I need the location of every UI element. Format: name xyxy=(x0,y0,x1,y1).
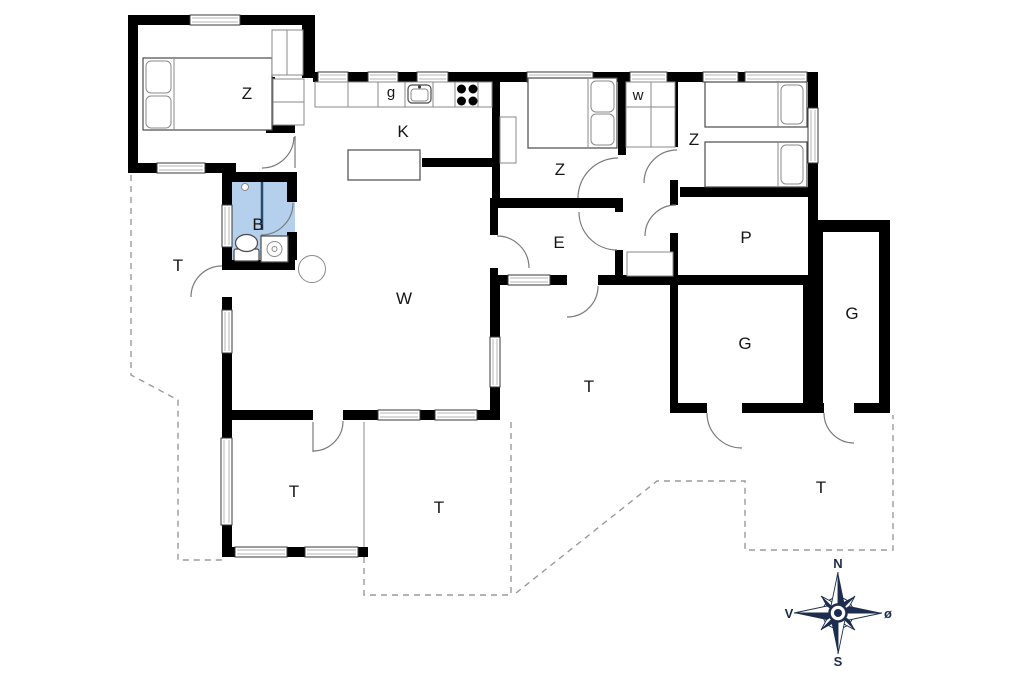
window xyxy=(157,163,205,173)
window xyxy=(235,547,287,557)
window xyxy=(305,547,358,557)
label-bedroom1: Z xyxy=(242,84,252,103)
floorplan-canvas: Z K g Z w Z B E P W G G T T T T T xyxy=(0,0,1024,682)
wardrobe-bedroom2 xyxy=(500,117,516,163)
kitchen-island xyxy=(348,150,420,180)
door-bedroom1-arc xyxy=(262,137,294,168)
label-bathroom: B xyxy=(252,215,263,234)
door-conservatory-arc xyxy=(313,421,343,451)
window xyxy=(808,108,818,163)
door-garage2-arc xyxy=(824,413,854,443)
compass-rose-icon: N S V ø xyxy=(785,556,892,669)
window xyxy=(318,72,348,82)
window xyxy=(378,410,420,420)
washing-machine-icon xyxy=(261,236,288,262)
compass-east-label: ø xyxy=(884,606,892,621)
door-entry-south-arc xyxy=(567,286,598,317)
label-terrace-mid: T xyxy=(434,498,444,517)
door-west-terrace-arc xyxy=(191,266,222,297)
label-pantry: P xyxy=(740,228,751,247)
door-entry-hall-arc xyxy=(579,212,617,250)
window xyxy=(745,72,807,82)
window xyxy=(490,337,500,387)
door-entry-west-arc xyxy=(497,236,529,268)
label-utility: w xyxy=(632,87,644,104)
label-bedroom3: Z xyxy=(689,130,699,149)
toilet-icon xyxy=(234,235,259,262)
compass-north-label: N xyxy=(833,556,842,571)
compass-south-label: S xyxy=(834,654,843,669)
kitchen-sink-icon xyxy=(408,85,431,103)
label-garage1: G xyxy=(738,334,751,353)
window xyxy=(222,205,232,247)
label-entry: E xyxy=(553,233,564,252)
bed-single-2 xyxy=(705,142,807,187)
label-kitchen: K xyxy=(397,122,409,141)
label-fridge: g xyxy=(387,84,395,101)
door-bedroom3-arc xyxy=(644,150,677,183)
hall-closet xyxy=(627,252,673,276)
window xyxy=(417,72,448,82)
bed-double-1 xyxy=(143,58,272,130)
door-pantry-arc xyxy=(645,205,676,236)
window xyxy=(435,410,477,420)
label-terrace-conservatory: T xyxy=(289,482,299,501)
floorplan-page: Z K g Z w Z B E P W G G T T T T T xyxy=(0,0,1024,682)
window xyxy=(508,275,550,285)
kitchen-counter xyxy=(315,82,492,107)
label-terrace-right: T xyxy=(816,478,826,497)
window xyxy=(368,72,398,82)
window xyxy=(703,72,738,82)
door-bedroom2-arc xyxy=(578,158,618,198)
window xyxy=(190,15,240,25)
round-table xyxy=(299,256,326,283)
bed-double-2 xyxy=(528,78,617,148)
label-living: W xyxy=(396,289,412,308)
bed-single-1 xyxy=(705,82,807,127)
label-garage2: G xyxy=(845,304,858,323)
door-garage1-arc xyxy=(707,413,742,448)
window xyxy=(222,310,232,353)
furniture xyxy=(143,30,807,283)
label-terrace-left: T xyxy=(173,256,183,275)
window xyxy=(630,72,667,82)
compass-west-label: V xyxy=(785,606,794,621)
window xyxy=(221,438,232,525)
label-bedroom2: Z xyxy=(555,160,565,179)
label-terrace-center: T xyxy=(584,377,594,396)
